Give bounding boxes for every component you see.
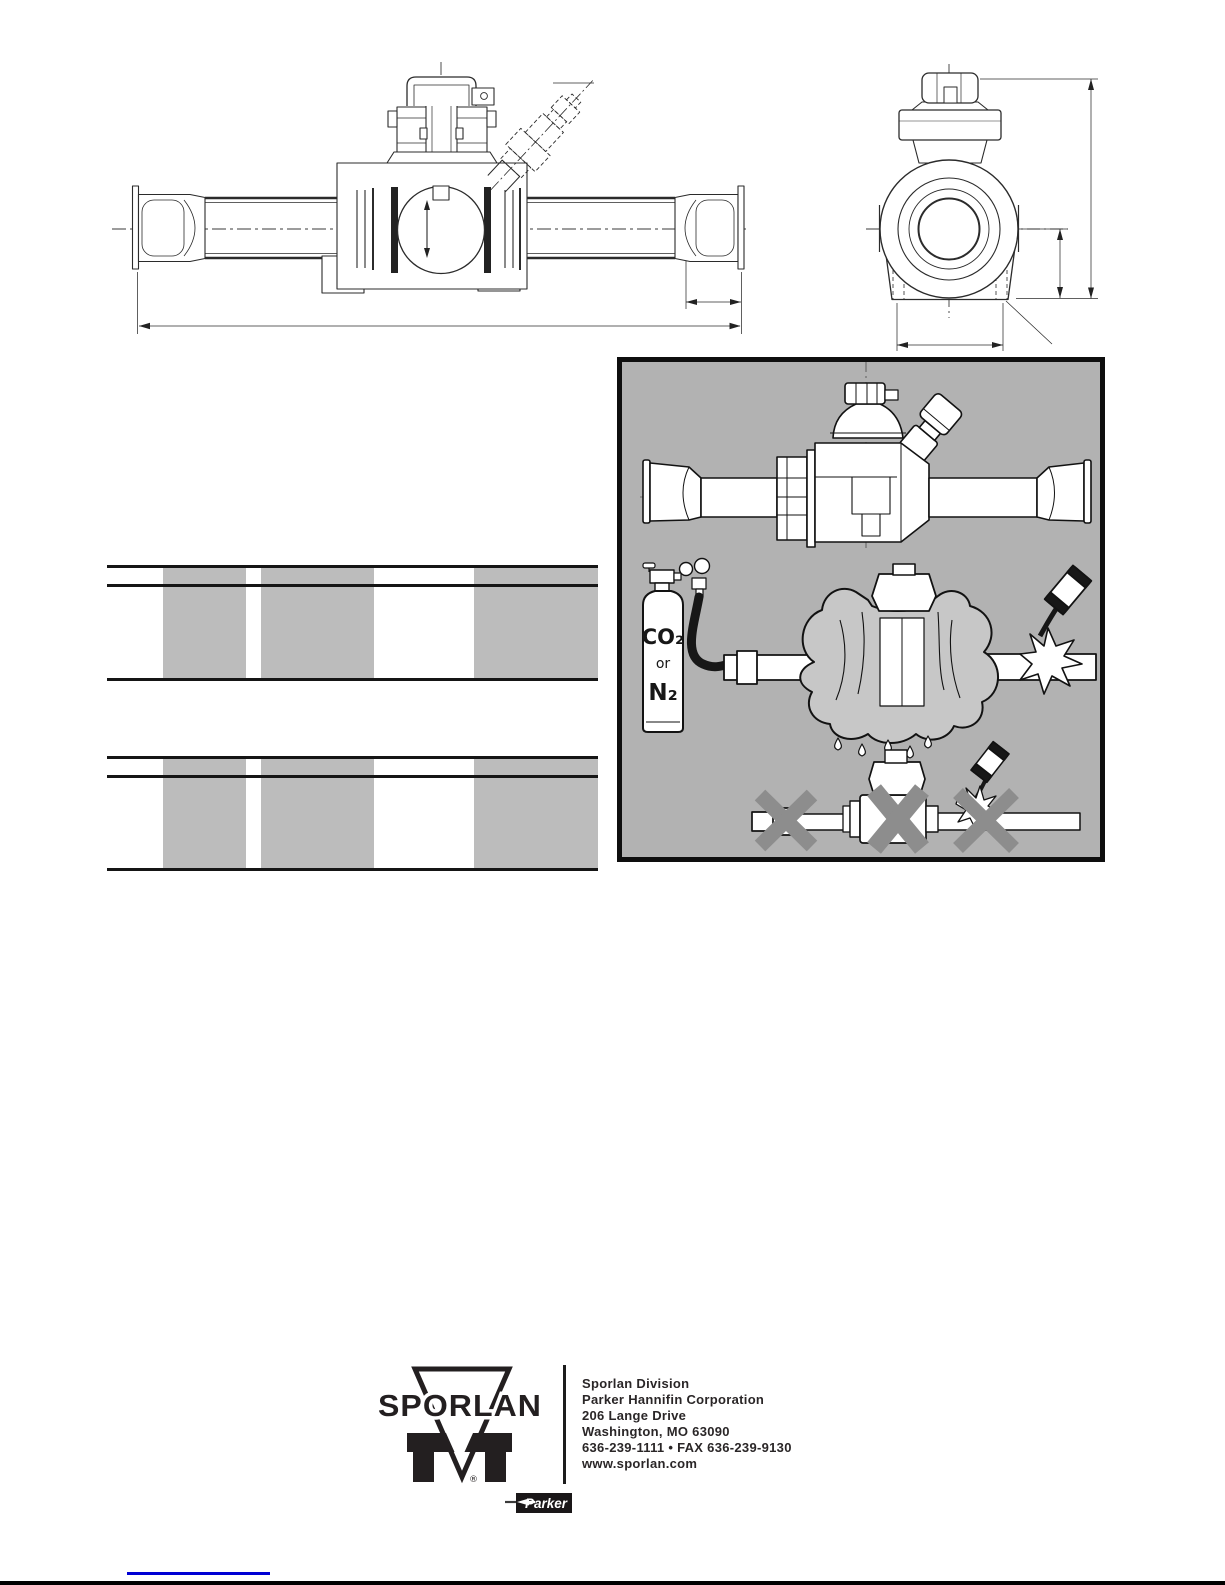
ball-valve-side-section-drawing (100, 55, 750, 345)
address-line: 636-239-1111 • FAX 636-239-9130 (582, 1440, 792, 1456)
registered-trademark: ® (469, 1475, 478, 1485)
spec-table-2 (107, 756, 598, 871)
company-address-block: Sporlan Division Parker Hannifin Corpora… (582, 1376, 792, 1471)
website-url: www.sporlan.com (582, 1456, 792, 1472)
sporlan-wordmark: SPORLAN (378, 1388, 542, 1423)
table-rule (107, 565, 598, 568)
regulator-gauge (695, 559, 710, 574)
valve-body (322, 163, 527, 293)
flare-nut (872, 574, 936, 611)
table-rule (107, 868, 598, 871)
parker-wordmark: Parker (525, 1496, 568, 1511)
right-tube-fitting (675, 186, 744, 269)
installation-panel: CO₂ or N₂ (617, 357, 1105, 862)
parker-logo: Parker (505, 1491, 580, 1515)
page-bottom-border (0, 1581, 1225, 1585)
regulator-gauge (680, 563, 693, 576)
seal-cap (845, 383, 885, 404)
table-rule (107, 584, 598, 587)
address-line: 206 Lange Drive (582, 1408, 792, 1424)
ball-valve-end-view-drawing (853, 58, 1108, 358)
address-line: Sporlan Division (582, 1376, 792, 1392)
cylinder-label-co2: CO₂ (642, 625, 684, 649)
end-view (866, 64, 1098, 351)
valve-mark-left (407, 1433, 455, 1482)
table-rule (107, 756, 598, 759)
fitting-depth-dimension (686, 261, 741, 309)
right-tube (527, 198, 675, 258)
left-tube-fitting (133, 186, 206, 269)
sporlan-logo-mark: SPORLAN ® (378, 1369, 542, 1485)
side-section (112, 62, 746, 334)
table-rule (107, 678, 598, 681)
table-rule (107, 775, 598, 778)
address-line: Washington, MO 63090 (582, 1424, 792, 1440)
spec-table-1 (107, 565, 598, 681)
document-page: CO₂ or N₂ (0, 0, 1225, 1585)
cylinder-label-or: or (656, 656, 671, 672)
footer-divider (563, 1365, 566, 1484)
footer-link-underline[interactable] (127, 1572, 270, 1575)
cylinder-label-n2: N₂ (648, 680, 677, 706)
left-tube (205, 198, 352, 258)
address-line: Parker Hannifin Corporation (582, 1392, 792, 1408)
end-view-body (880, 73, 1019, 300)
bonnet-and-stem (387, 77, 497, 163)
leader-line (1006, 301, 1052, 344)
seal-cap (407, 77, 476, 106)
